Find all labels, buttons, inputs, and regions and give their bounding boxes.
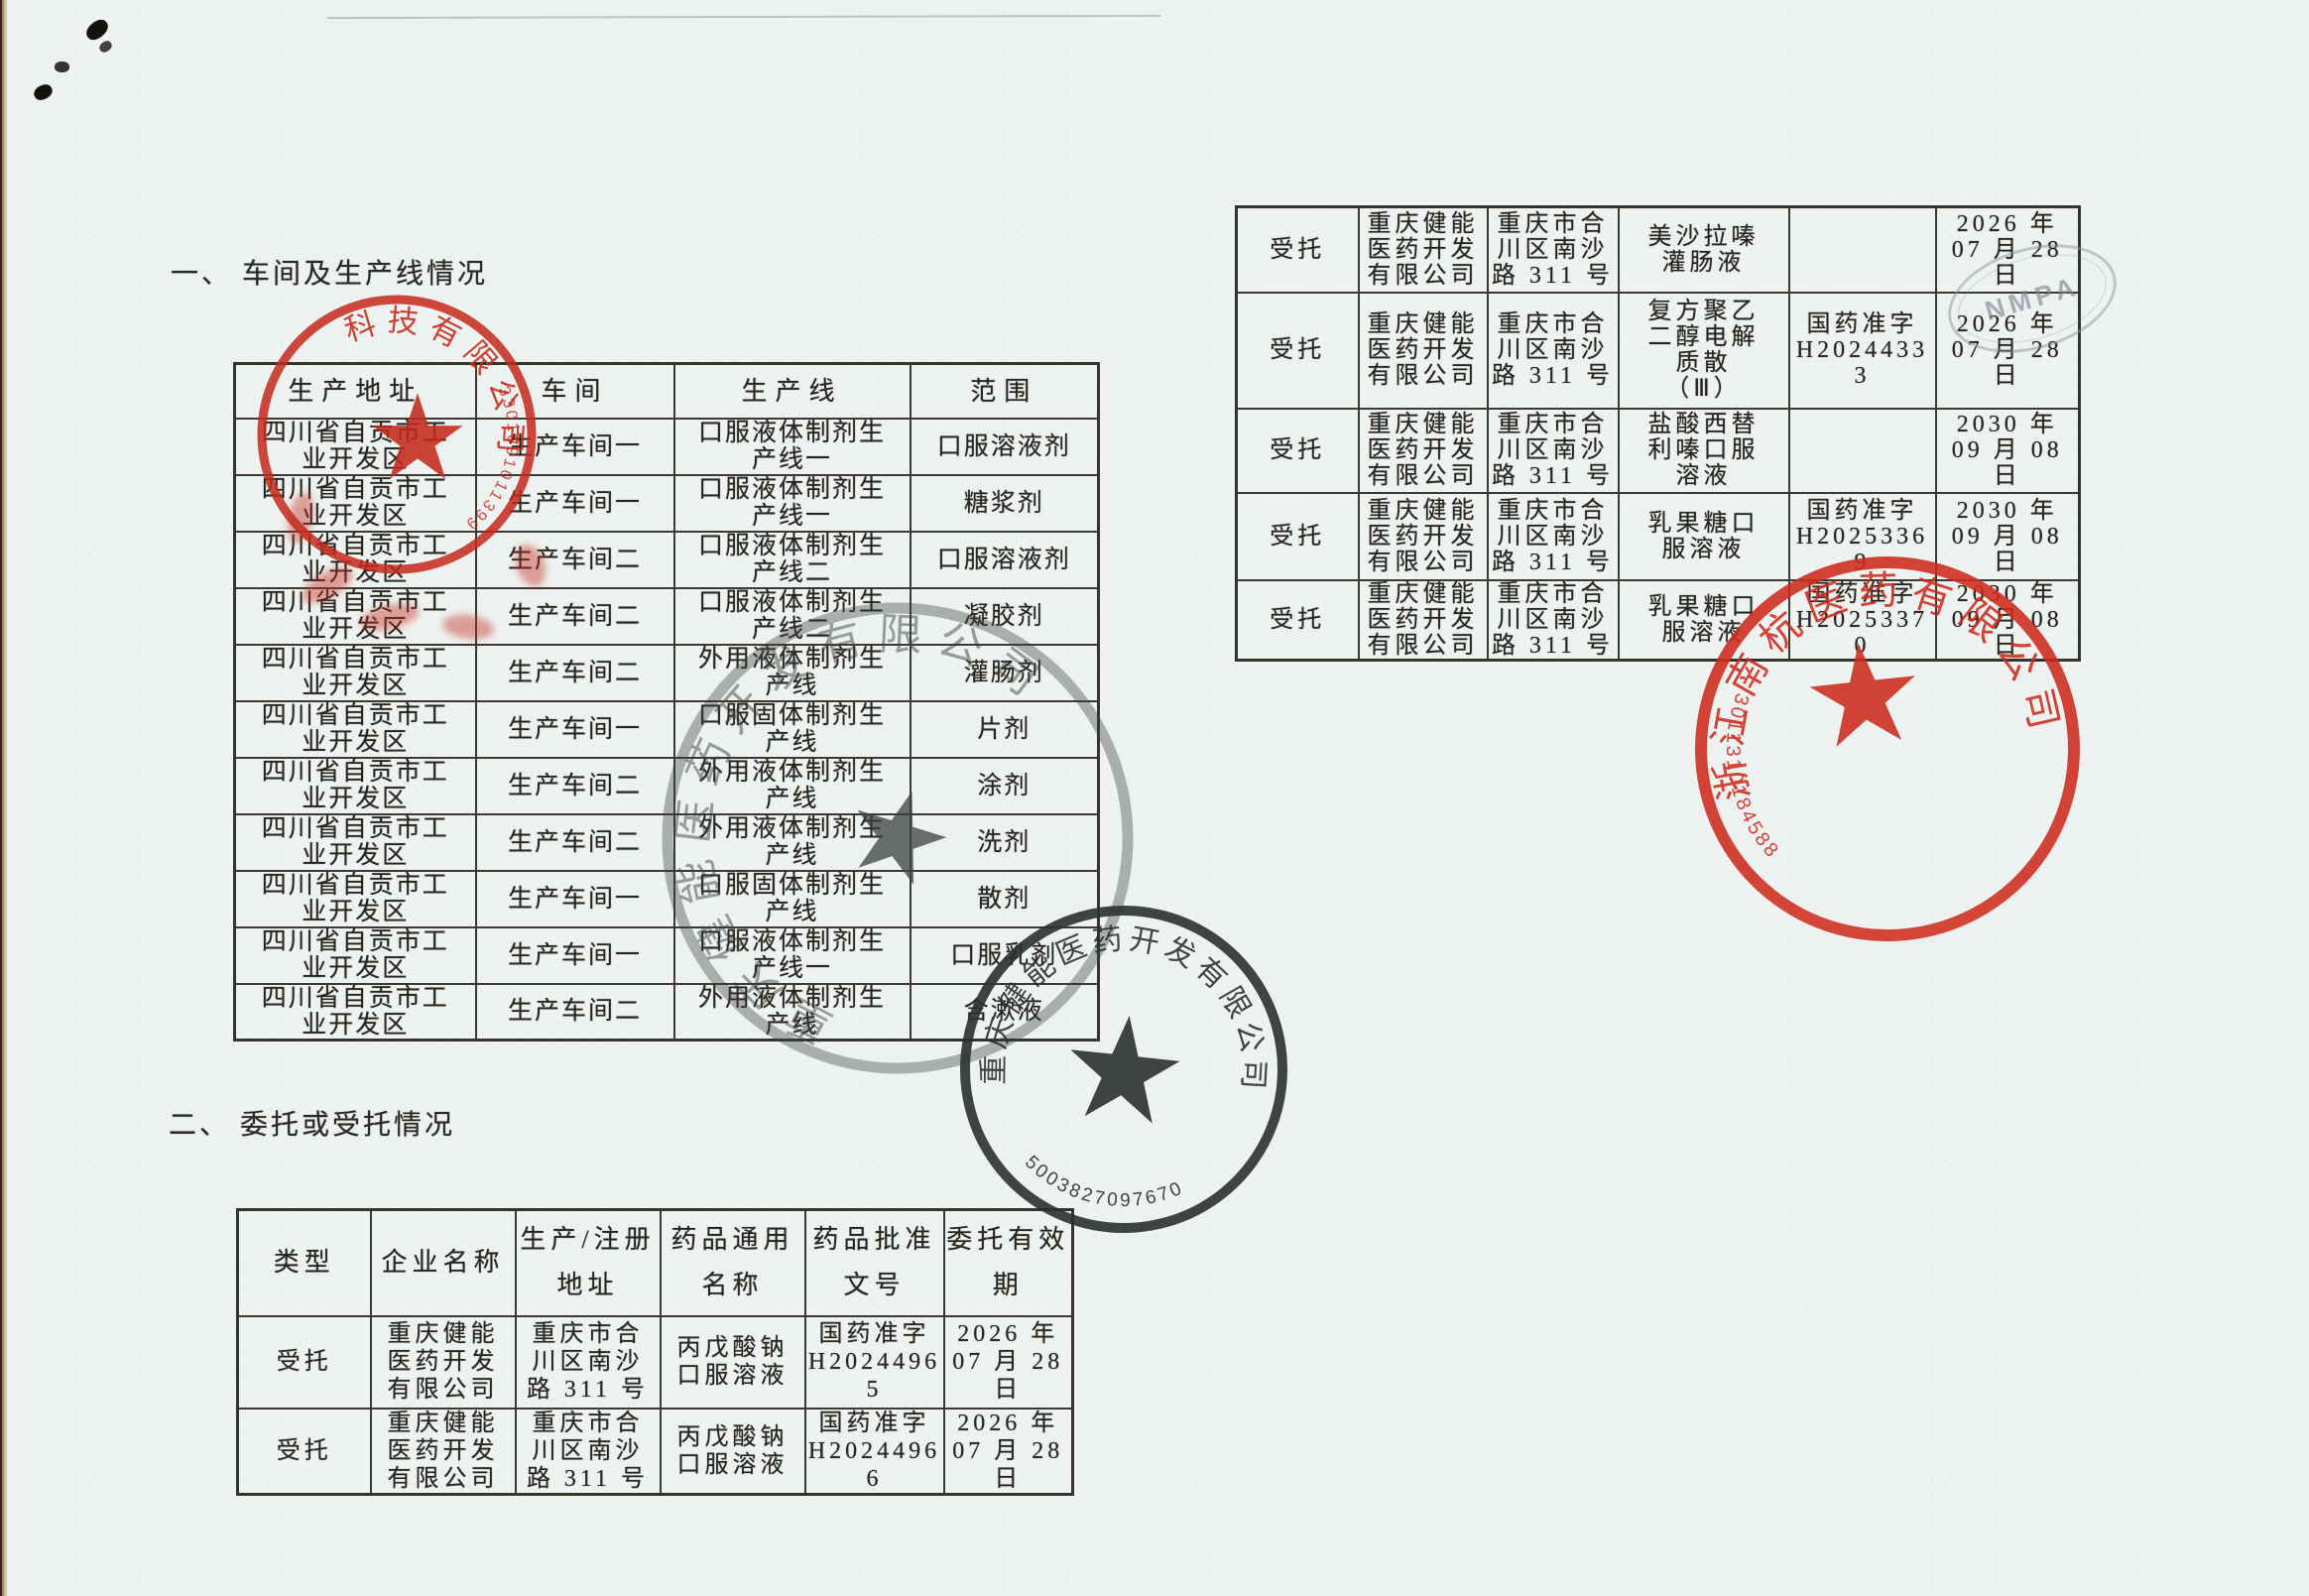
table1-header-cell: 生产线 [674,364,911,419]
table2-header-cell: 企业名称 [371,1210,516,1316]
table1-cell: 外用液体制剂生 产线 [674,984,911,1041]
ink-blob [55,61,69,72]
table2-row: 受托重庆健能 医药开发 有限公司重庆市合 川区南沙 路 311 号丙戊酸钠 口服… [238,1409,1073,1495]
table1-cell: 四川省自贡市工 业开发区 [235,984,476,1041]
workshop-production-line-table: 生产地址车间生产线范围 四川省自贡市工 业开发区生产车间一口服液体制剂生 产线一… [233,362,1100,1042]
table1-cell: 口服乳剂 [911,927,1099,984]
table1-cell: 四川省自贡市工 业开发区 [235,927,476,984]
table3-cell: 国药准字 H2025337 0 [1789,580,1936,661]
table1-row: 四川省自贡市工 业开发区生产车间一口服液体制剂生 产线一糖浆剂 [235,475,1099,532]
table3-cell: 受托 [1237,580,1359,661]
table1-cell: 四川省自贡市工 业开发区 [235,814,476,871]
table3-row: 受托重庆健能 医药开发 有限公司重庆市合 川区南沙 路 311 号盐酸西替 利嗪… [1237,409,2080,493]
table1-cell: 口服固体制剂生 产线 [674,701,911,758]
table1-cell: 四川省自贡市工 业开发区 [235,532,476,588]
table1-cell: 四川省自贡市工 业开发区 [235,645,476,701]
table1-cell: 生产车间二 [476,532,674,588]
table1-cell: 口服液体制剂生 产线二 [674,532,911,588]
table2-header-cell: 生产/注册 地址 [516,1210,661,1316]
entrustment-table: 类型企业名称生产/注册 地址药品通用 名称药品批准 文号委托有效 期 受托重庆健… [236,1208,1074,1496]
table2-cell: 重庆健能 医药开发 有限公司 [371,1316,516,1409]
table2-cell: 受托 [238,1316,371,1409]
scanned-document-page: 一、 车间及生产线情况 二、 委托或受托情况 生产地址车间生产线范围 四川省自贡… [0,0,2309,1596]
table2-cell: 2026 年 07 月 28 日 [944,1409,1073,1495]
table2-cell: 重庆市合 川区南沙 路 311 号 [516,1316,661,1409]
table2-header-cell: 药品通用 名称 [661,1210,805,1316]
table3-row: 受托重庆健能 医药开发 有限公司重庆市合 川区南沙 路 311 号乳果糖口 服溶… [1237,580,2080,661]
table3-cell: 受托 [1237,207,1359,293]
table1-cell: 口服液体制剂生 产线一 [674,927,911,984]
table1-header-cell: 范围 [911,364,1099,419]
table3-cell: 重庆健能 医药开发 有限公司 [1359,409,1488,493]
table3-cell: 受托 [1237,493,1359,580]
table3-cell: 国药准字 H2025336 9 [1789,493,1936,580]
table3-cell: 乳果糖口 服溶液 [1619,580,1789,661]
scan-edge-artifact [0,0,7,1596]
table3-cell: 2030 年 09 月 08 日 [1936,580,2080,661]
table1-row: 四川省自贡市工 业开发区生产车间二外用液体制剂生 产线洗剂 [235,814,1099,871]
table2-header-row: 类型企业名称生产/注册 地址药品通用 名称药品批准 文号委托有效 期 [238,1210,1073,1316]
table1-row: 四川省自贡市工 业开发区生产车间二外用液体制剂生 产线含漱液 [235,984,1099,1041]
table1-cell: 生产车间二 [476,814,674,871]
table1-cell: 生产车间一 [476,419,674,475]
table1-cell: 外用液体制剂生 产线 [674,814,911,871]
table2-cell: 国药准字 H2024496 5 [805,1316,944,1409]
table1-cell: 四川省自贡市工 业开发区 [235,871,476,927]
table3-row: 受托重庆健能 医药开发 有限公司重庆市合 川区南沙 路 311 号美沙拉嗪 灌肠… [1237,207,2080,293]
table1-cell: 外用液体制剂生 产线 [674,758,911,814]
table1-cell: 糖浆剂 [911,475,1099,532]
table2-cell: 2026 年 07 月 28 日 [944,1316,1073,1409]
entrustment-continuation-table: 受托重庆健能 医药开发 有限公司重庆市合 川区南沙 路 311 号美沙拉嗪 灌肠… [1235,205,2081,662]
table2-header-cell: 委托有效 期 [944,1210,1073,1316]
table1-row: 四川省自贡市工 业开发区生产车间一口服液体制剂生 产线一口服溶液剂 [235,419,1099,475]
table1-cell: 生产车间二 [476,645,674,701]
table1-cell: 散剂 [911,871,1099,927]
table3-cell: 重庆健能 医药开发 有限公司 [1359,207,1488,293]
table1-row: 四川省自贡市工 业开发区生产车间二外用液体制剂生 产线涂剂 [235,758,1099,814]
table2-cell: 重庆市合 川区南沙 路 311 号 [516,1409,661,1495]
table3-cell: 2030 年 09 月 08 日 [1936,493,2080,580]
seal-serial-number: 3011310184588 [1715,687,1785,868]
table1-row: 四川省自贡市工 业开发区生产车间二口服液体制剂生 产线二口服溶液剂 [235,532,1099,588]
table2-row: 受托重庆健能 医药开发 有限公司重庆市合 川区南沙 路 311 号丙戊酸钠 口服… [238,1316,1073,1409]
table3-cell [1789,409,1936,493]
table1-cell: 灌肠剂 [911,645,1099,701]
table1-cell: 口服溶液剂 [911,532,1099,588]
table1-cell: 生产车间一 [476,871,674,927]
table1-row: 四川省自贡市工 业开发区生产车间二口服液体制剂生 产线二凝胶剂 [235,588,1099,645]
table1-cell: 生产车间二 [476,758,674,814]
table2-header-cell: 药品批准 文号 [805,1210,944,1316]
table2-cell: 国药准字 H2024496 6 [805,1409,944,1495]
ghost-stamp-text: NMPA [1982,271,2083,327]
table1-cell: 生产车间二 [476,588,674,645]
section1-heading: 一、 车间及生产线情况 [171,252,488,292]
table1-cell: 口服溶液剂 [911,419,1099,475]
table1-cell: 凝胶剂 [911,588,1099,645]
table1-cell: 生产车间一 [476,475,674,532]
table2-cell: 受托 [238,1409,371,1495]
table1-cell: 外用液体制剂生 产线 [674,645,911,701]
table3-cell: 重庆市合 川区南沙 路 311 号 [1488,293,1619,409]
table3-cell: 国药准字 H2024433 3 [1789,293,1936,409]
table2-cell: 丙戊酸钠 口服溶液 [661,1409,805,1495]
table3-cell: 美沙拉嗪 灌肠液 [1619,207,1789,293]
table3-cell: 2030 年 09 月 08 日 [1936,409,2080,493]
table2-cell: 重庆健能 医药开发 有限公司 [371,1409,516,1495]
table3-cell: 重庆市合 川区南沙 路 311 号 [1488,580,1619,661]
ink-blob [32,81,55,102]
table3-cell: 重庆市合 川区南沙 路 311 号 [1488,493,1619,580]
table3-cell: 盐酸西替 利嗪口服 溶液 [1619,409,1789,493]
table1-cell: 口服液体制剂生 产线二 [674,588,911,645]
table3-cell: 重庆健能 医药开发 有限公司 [1359,493,1488,580]
table1-cell: 片剂 [911,701,1099,758]
table1-cell: 含漱液 [911,984,1099,1041]
table3-cell: 受托 [1237,293,1359,409]
table1-cell: 四川省自贡市工 业开发区 [235,701,476,758]
table3-cell: 复方聚乙 二醇电解 质散 （Ⅲ） [1619,293,1789,409]
table1-cell: 四川省自贡市工 业开发区 [235,475,476,532]
table1-cell: 生产车间一 [476,701,674,758]
table1-cell: 口服液体制剂生 产线一 [674,475,911,532]
ink-blob [97,39,113,55]
table1-row: 四川省自贡市工 业开发区生产车间一口服固体制剂生 产线片剂 [235,701,1099,758]
table1-row: 四川省自贡市工 业开发区生产车间一口服固体制剂生 产线散剂 [235,871,1099,927]
table1-row: 四川省自贡市工 业开发区生产车间二外用液体制剂生 产线灌肠剂 [235,645,1099,701]
table1-cell: 洗剂 [911,814,1099,871]
table3-cell: 受托 [1237,409,1359,493]
table1-cell: 涂剂 [911,758,1099,814]
table3-cell: 重庆健能 医药开发 有限公司 [1359,293,1488,409]
table3-cell: 重庆健能 医药开发 有限公司 [1359,580,1488,661]
table2-cell: 丙戊酸钠 口服溶液 [661,1316,805,1409]
table3-cell: 重庆市合 川区南沙 路 311 号 [1488,409,1619,493]
table3-row: 受托重庆健能 医药开发 有限公司重庆市合 川区南沙 路 311 号乳果糖口 服溶… [1237,493,2080,580]
table3-cell: 乳果糖口 服溶液 [1619,493,1789,580]
table3-cell [1789,207,1936,293]
table1-header-cell: 车间 [476,364,674,419]
table1-cell: 四川省自贡市工 业开发区 [235,758,476,814]
svg-text:3011310184588: 3011310184588 [1715,687,1785,868]
table1-row: 四川省自贡市工 业开发区生产车间一口服液体制剂生 产线一口服乳剂 [235,927,1099,984]
section2-heading: 二、 委托或受托情况 [169,1103,455,1143]
table1-header-cell: 生产地址 [235,364,476,419]
table1-cell: 生产车间一 [476,927,674,984]
table1-cell: 口服固体制剂生 产线 [674,871,911,927]
table1-header-row: 生产地址车间生产线范围 [235,364,1099,419]
table2-header-cell: 类型 [238,1210,371,1316]
table3-cell: 重庆市合 川区南沙 路 311 号 [1488,207,1619,293]
ink-blob [83,16,112,44]
scan-streak-artifact [327,15,1160,19]
table1-cell: 生产车间二 [476,984,674,1041]
table1-cell: 口服液体制剂生 产线一 [674,419,911,475]
table1-cell: 四川省自贡市工 业开发区 [235,419,476,475]
table1-cell: 四川省自贡市工 业开发区 [235,588,476,645]
